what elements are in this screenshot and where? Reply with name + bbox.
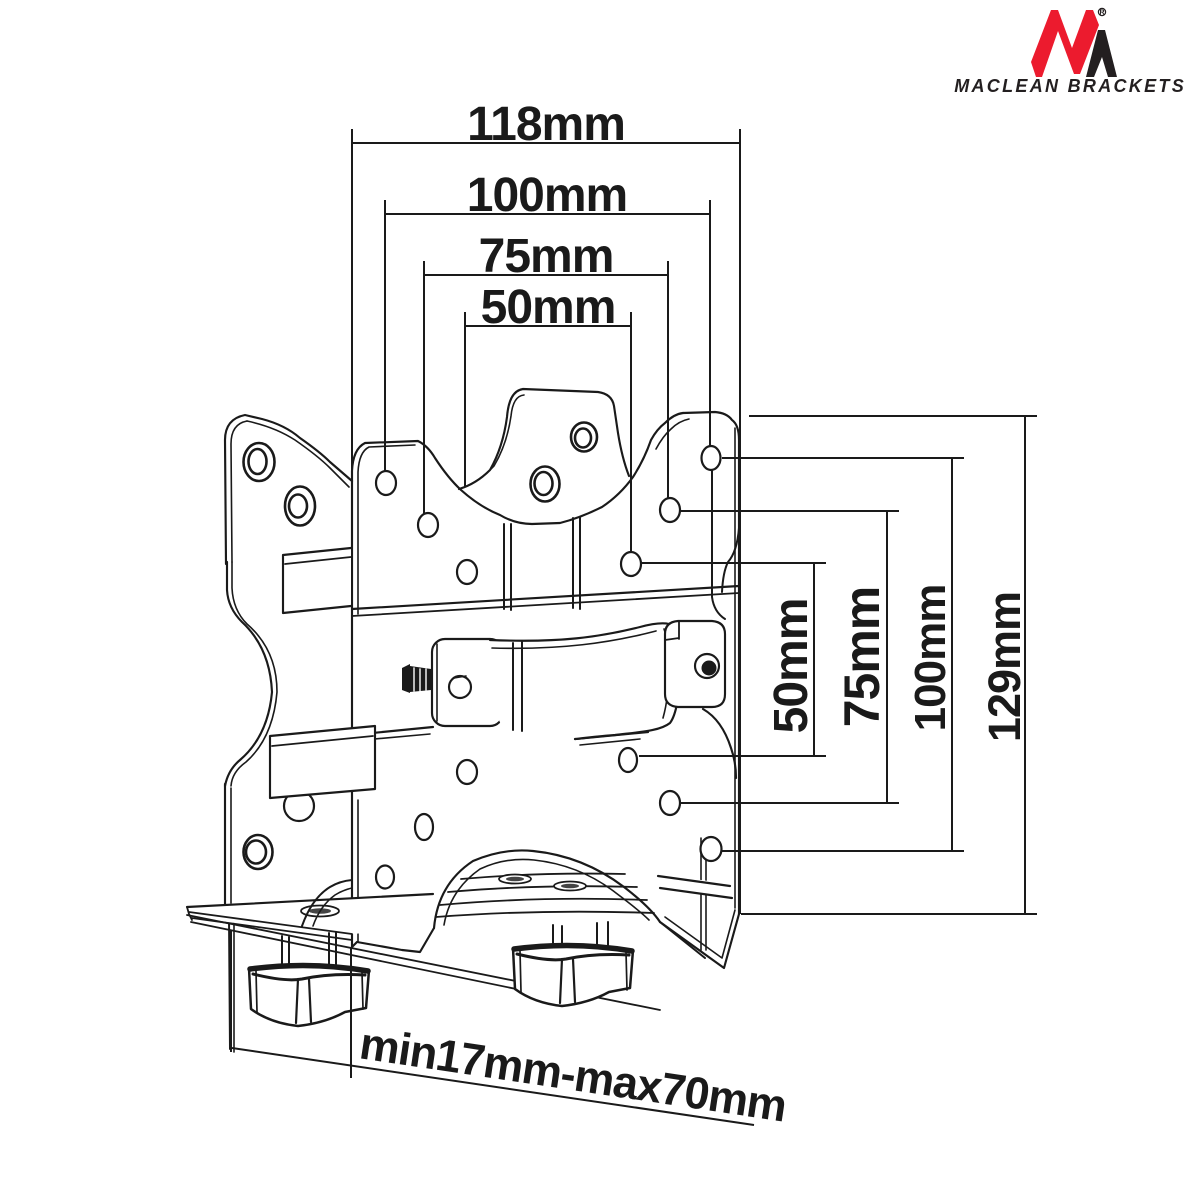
svg-text:50mm: 50mm bbox=[765, 599, 818, 734]
svg-text:MACLEAN BRACKETS: MACLEAN BRACKETS bbox=[954, 76, 1186, 96]
svg-text:118mm: 118mm bbox=[467, 98, 625, 151]
svg-text:100mm: 100mm bbox=[467, 169, 627, 222]
svg-text:50mm: 50mm bbox=[481, 281, 616, 334]
svg-text:100mm: 100mm bbox=[906, 585, 955, 732]
svg-text:75mm: 75mm bbox=[479, 230, 614, 283]
svg-text:75mm: 75mm bbox=[834, 587, 890, 728]
svg-text:129mm: 129mm bbox=[979, 592, 1030, 742]
svg-text:R: R bbox=[1099, 10, 1104, 17]
